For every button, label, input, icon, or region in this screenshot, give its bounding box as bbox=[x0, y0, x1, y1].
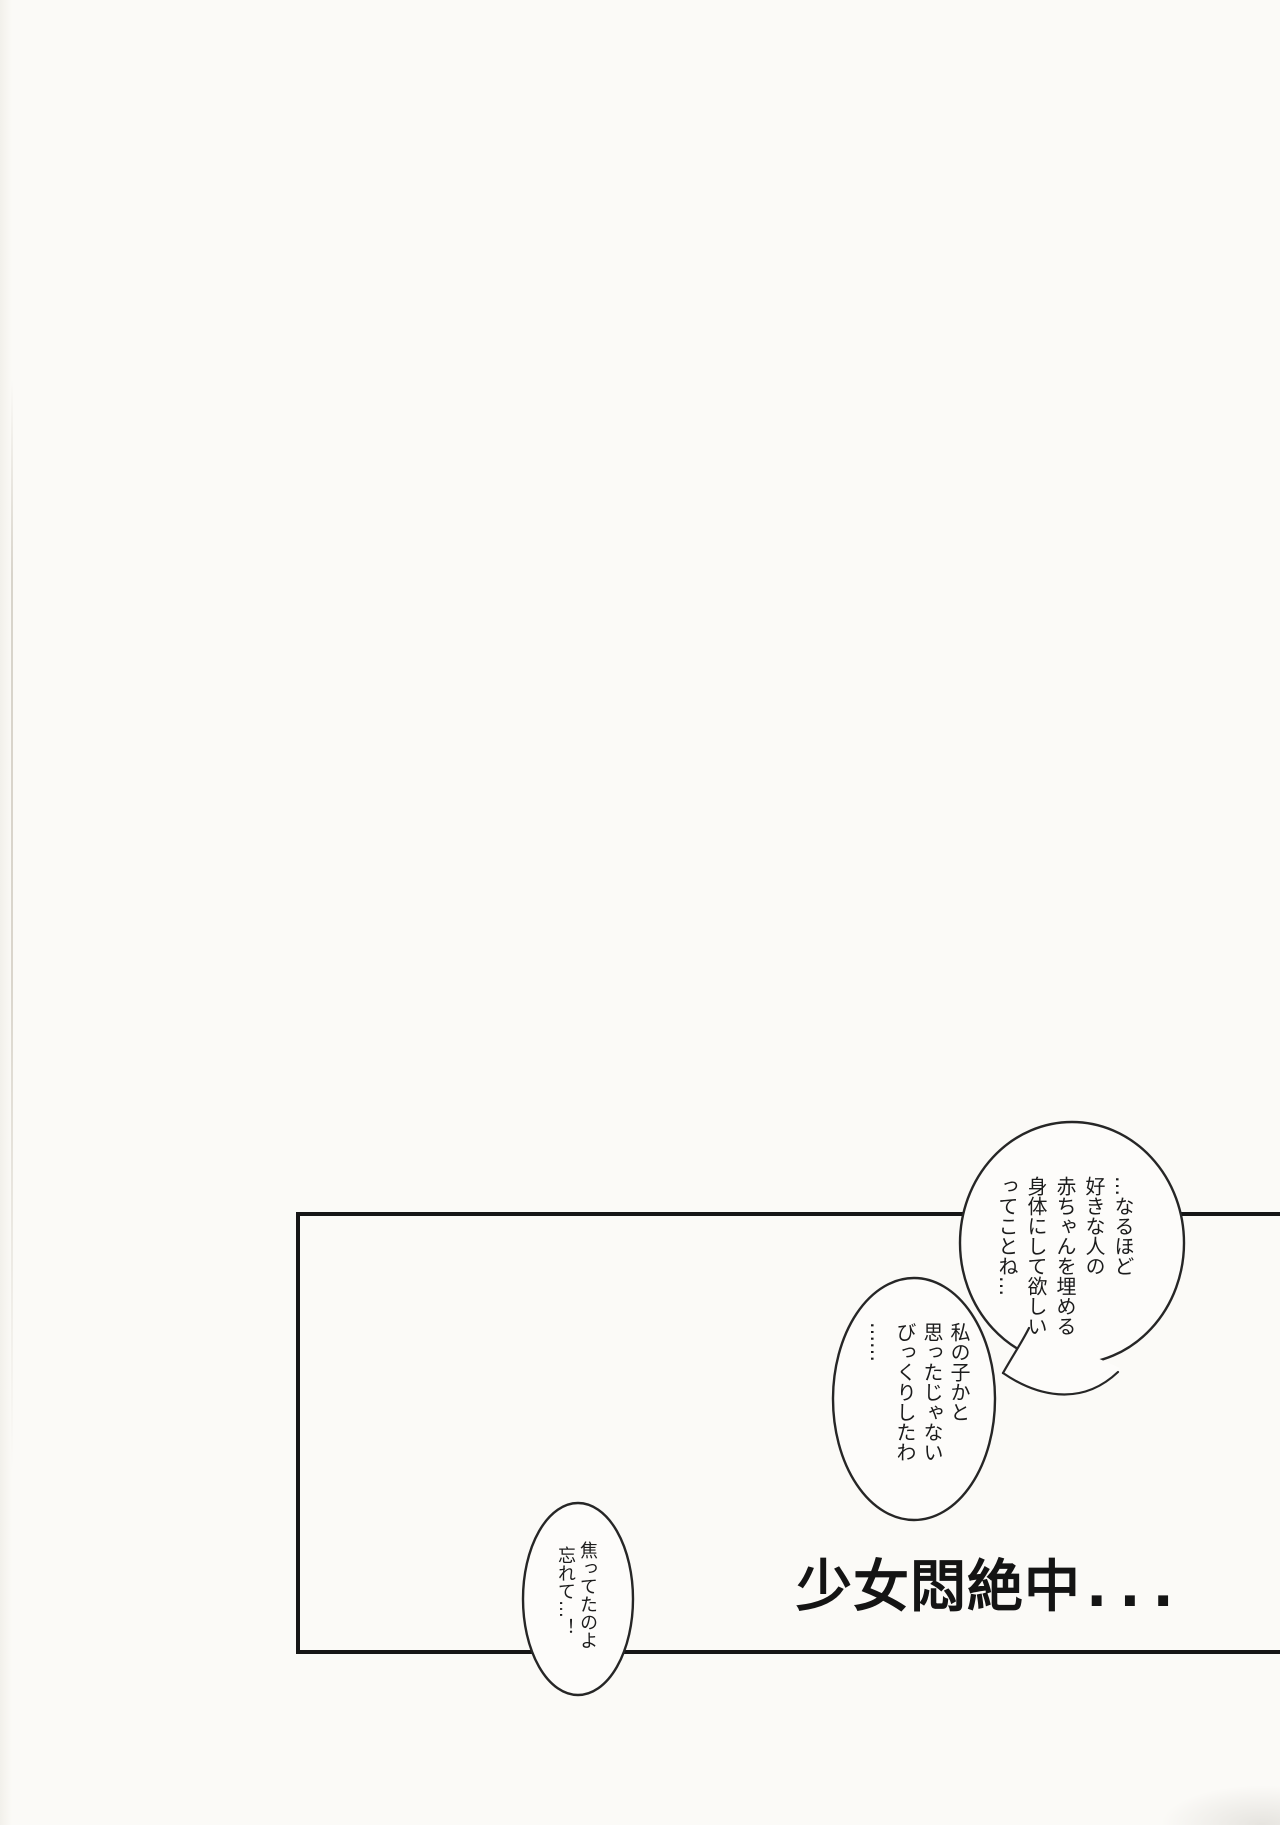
vertical-text-column: …… bbox=[864, 1322, 891, 1477]
panel-title: 少女悶絶中... bbox=[796, 1560, 1186, 1616]
vertical-text-column: 思ったじゃない bbox=[918, 1322, 945, 1477]
vertical-text-column: ってことね… bbox=[992, 1176, 1021, 1348]
panel-artwork bbox=[0, 0, 1280, 1825]
speech-bubble-3-text: 焦ってたのよ 忘れて…！ bbox=[553, 1541, 598, 1671]
panel-title-dots: ... bbox=[1086, 1555, 1186, 1620]
vertical-text-column: 忘れて…！ bbox=[554, 1546, 576, 1671]
manga-page-scan: …なるほど 好きな人の 赤ちゃんを埋める 身体にして欲しい ってことね… 私の子… bbox=[0, 0, 1280, 1825]
speech-bubble-1-text: …なるほど 好きな人の 赤ちゃんを埋める 身体にして欲しい ってことね… bbox=[991, 1176, 1137, 1348]
vertical-text-column: 好きな人の bbox=[1079, 1176, 1108, 1348]
panel-title-text: 少女悶絶中 bbox=[796, 1555, 1081, 1620]
vertical-text-column: …なるほど bbox=[1108, 1176, 1137, 1348]
vertical-text-column: 焦ってたのよ bbox=[576, 1541, 598, 1671]
vertical-text-column: 赤ちゃんを埋める bbox=[1050, 1176, 1079, 1348]
vertical-text-column: 私の子かと bbox=[945, 1322, 972, 1477]
vertical-text-column: 身体にして欲しい bbox=[1021, 1176, 1050, 1348]
vertical-text-column: びっくりしたわ bbox=[891, 1322, 918, 1477]
speech-bubble-2-text: 私の子かと 思ったじゃない びっくりしたわ …… bbox=[863, 1322, 972, 1477]
